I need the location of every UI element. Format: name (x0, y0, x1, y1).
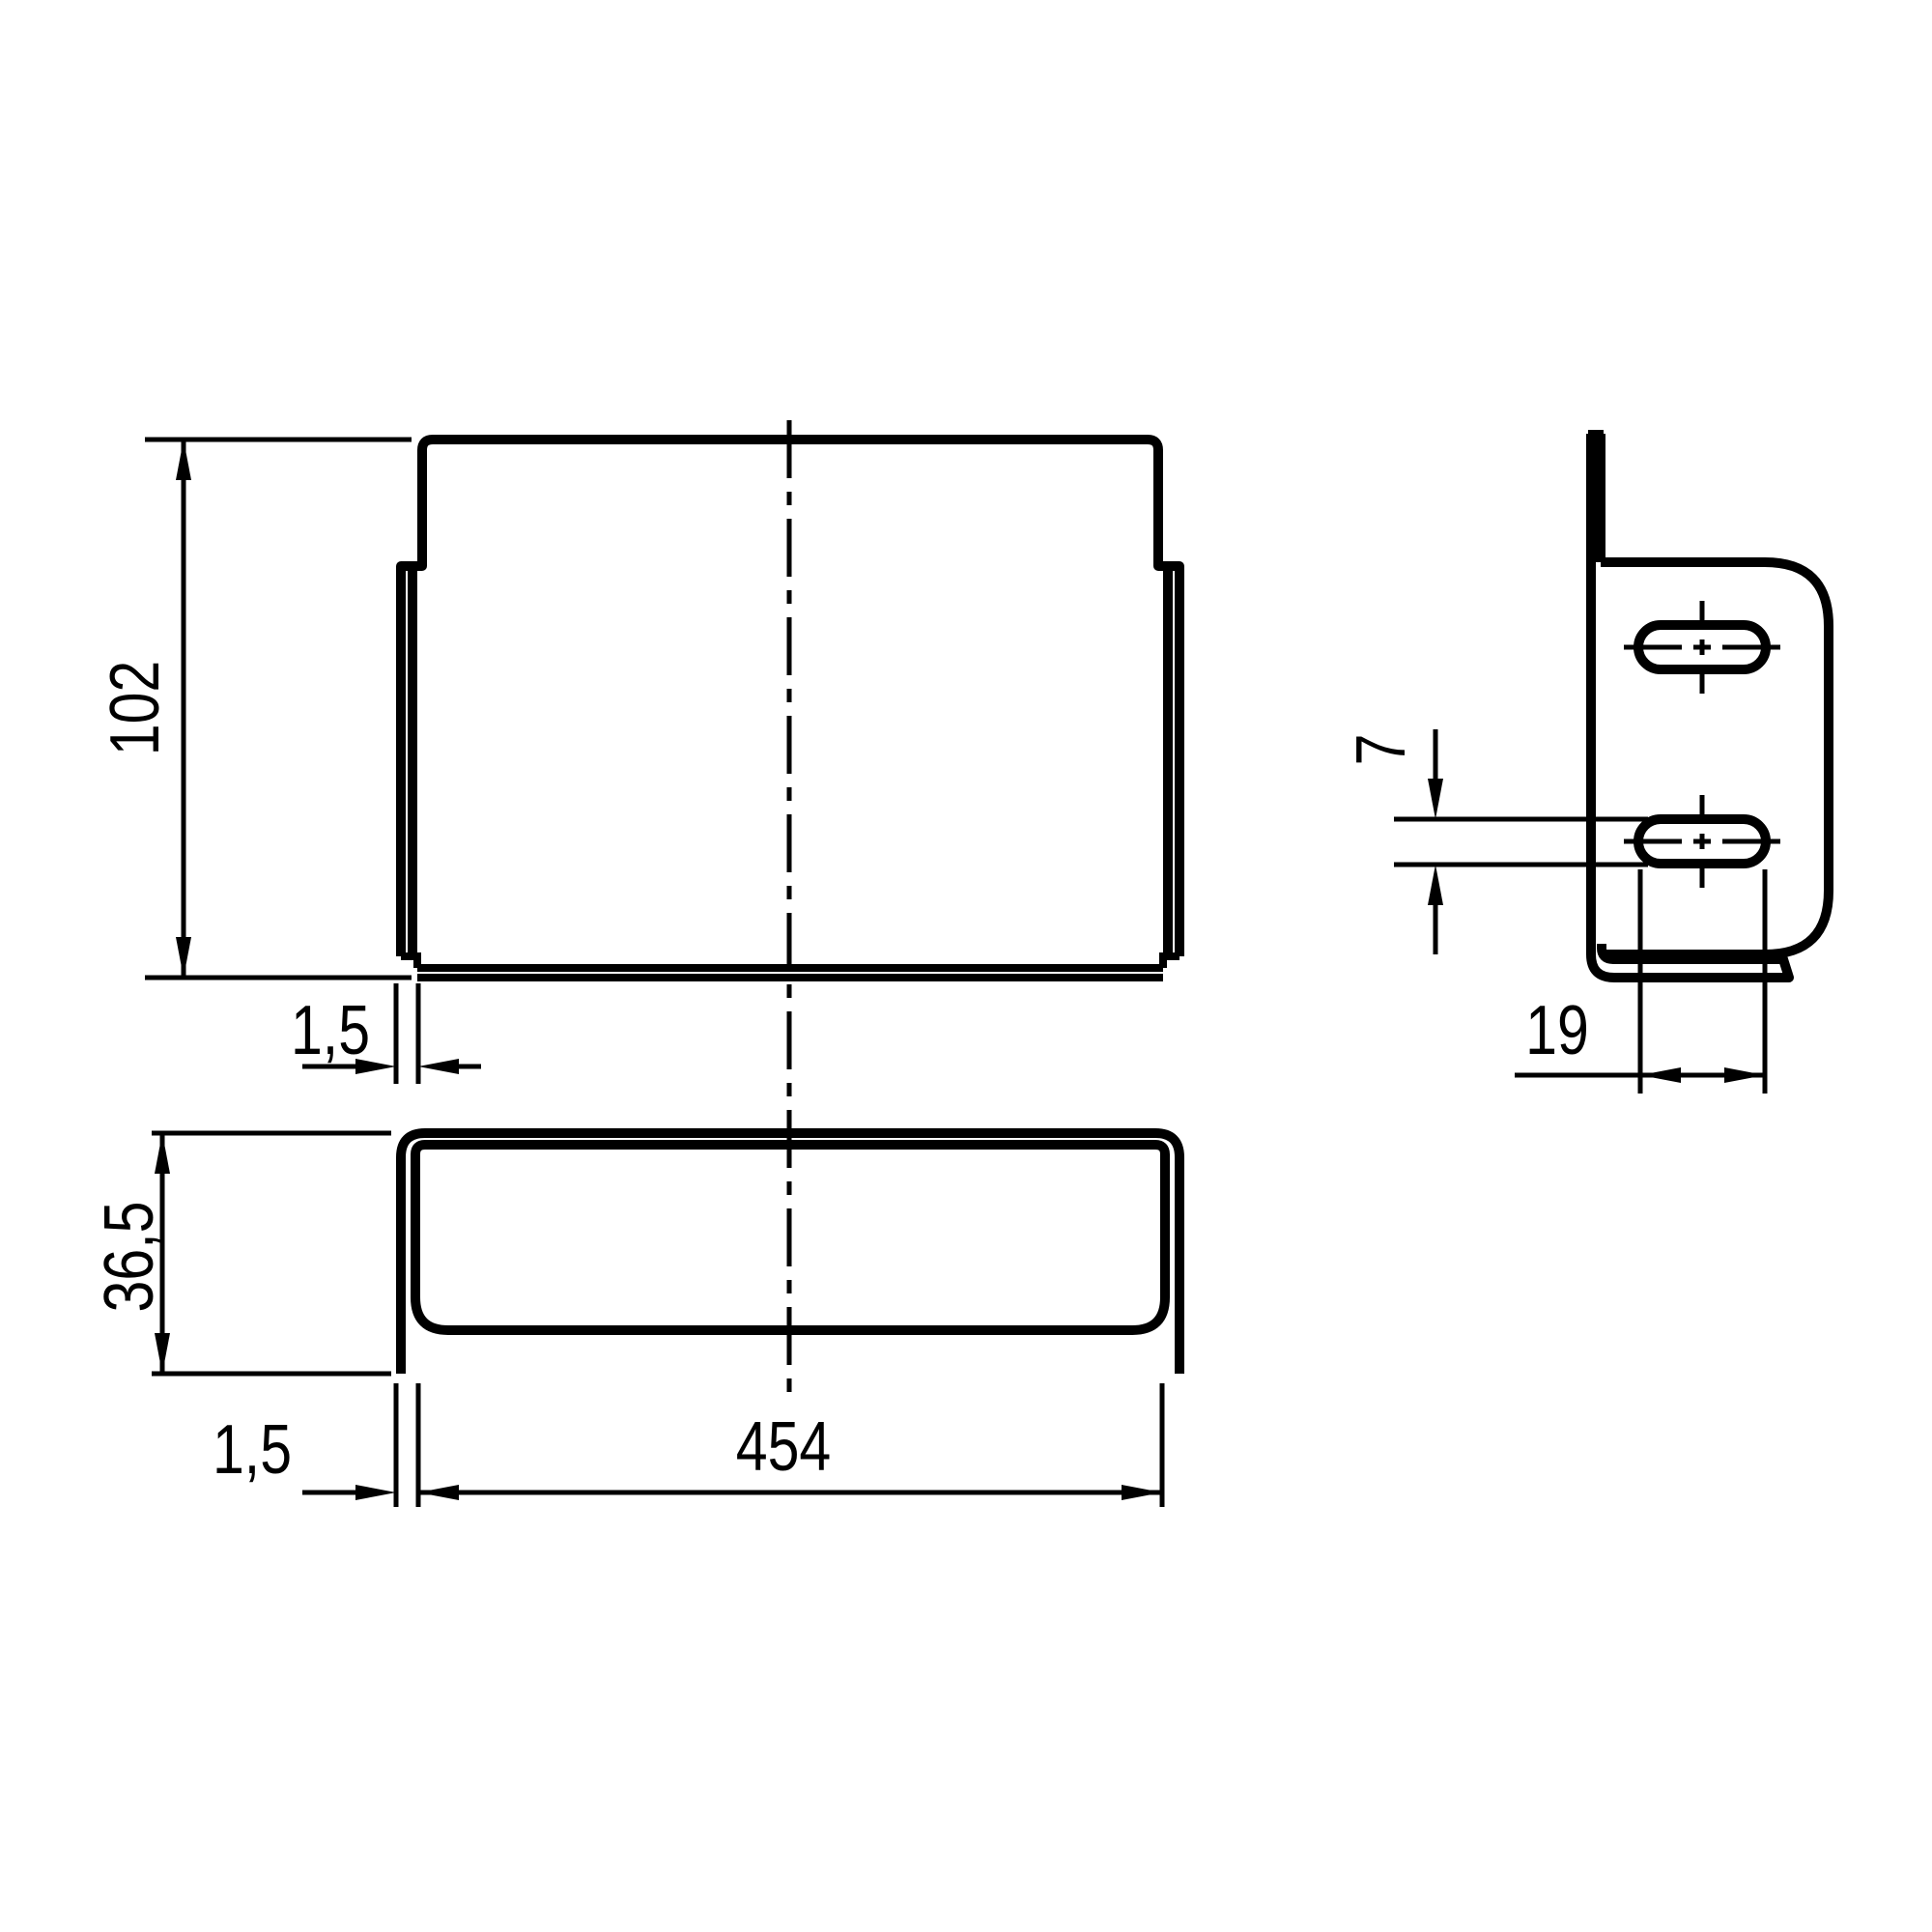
dim-7-arrow-up (1428, 865, 1443, 905)
dim-102-label: 102 (96, 661, 174, 755)
side-sheet-and-flange (1591, 434, 1789, 978)
front-view (401, 420, 1179, 1401)
dim-102-arrow-down (176, 937, 191, 978)
dimension-bottom-depth: 36,5 (90, 1133, 391, 1374)
dim-7-extension-lines (1394, 819, 1648, 865)
dimension-front-thickness: 1,5 (291, 983, 481, 1084)
dim-365-arrow-down (155, 1333, 170, 1374)
dim-19-arrow-left (1640, 1067, 1681, 1083)
dim-19-arrow-right (1724, 1067, 1765, 1083)
technical-drawing: 102 1,5 36,5 1,5 454 7 (0, 0, 1932, 1932)
dim-15top-arrow-left (418, 1059, 459, 1074)
front-right-ear-bottom-step (1163, 956, 1179, 968)
dim-15bot-arrow-left (418, 1485, 459, 1500)
dim-365-label: 36,5 (90, 1202, 168, 1313)
dim-365-extension-lines (152, 1133, 391, 1374)
dim-15bot-arrow-right (355, 1485, 396, 1500)
dim-454-arrow-right (1122, 1485, 1162, 1500)
dim-102-arrow-up (176, 440, 191, 480)
dim-15top-label: 1,5 (291, 991, 370, 1069)
dim-7-arrow-down (1428, 779, 1443, 819)
dim-7-label: 7 (1342, 734, 1420, 766)
dim-19-label: 19 (1525, 991, 1589, 1069)
dim-454-label: 454 (736, 1407, 831, 1486)
dimension-front-height: 102 (96, 440, 412, 978)
front-left-ear-bottom-step (401, 956, 417, 968)
dim-15top-extension-lines (396, 983, 418, 1084)
dim-15bot-label: 1,5 (213, 1410, 292, 1489)
dim-365-arrow-up (155, 1133, 170, 1174)
dimension-bottom-thickness-and-width: 1,5 454 (213, 1383, 1162, 1507)
side-view (1588, 434, 1829, 978)
dimension-slot-width: 7 (1342, 729, 1648, 954)
